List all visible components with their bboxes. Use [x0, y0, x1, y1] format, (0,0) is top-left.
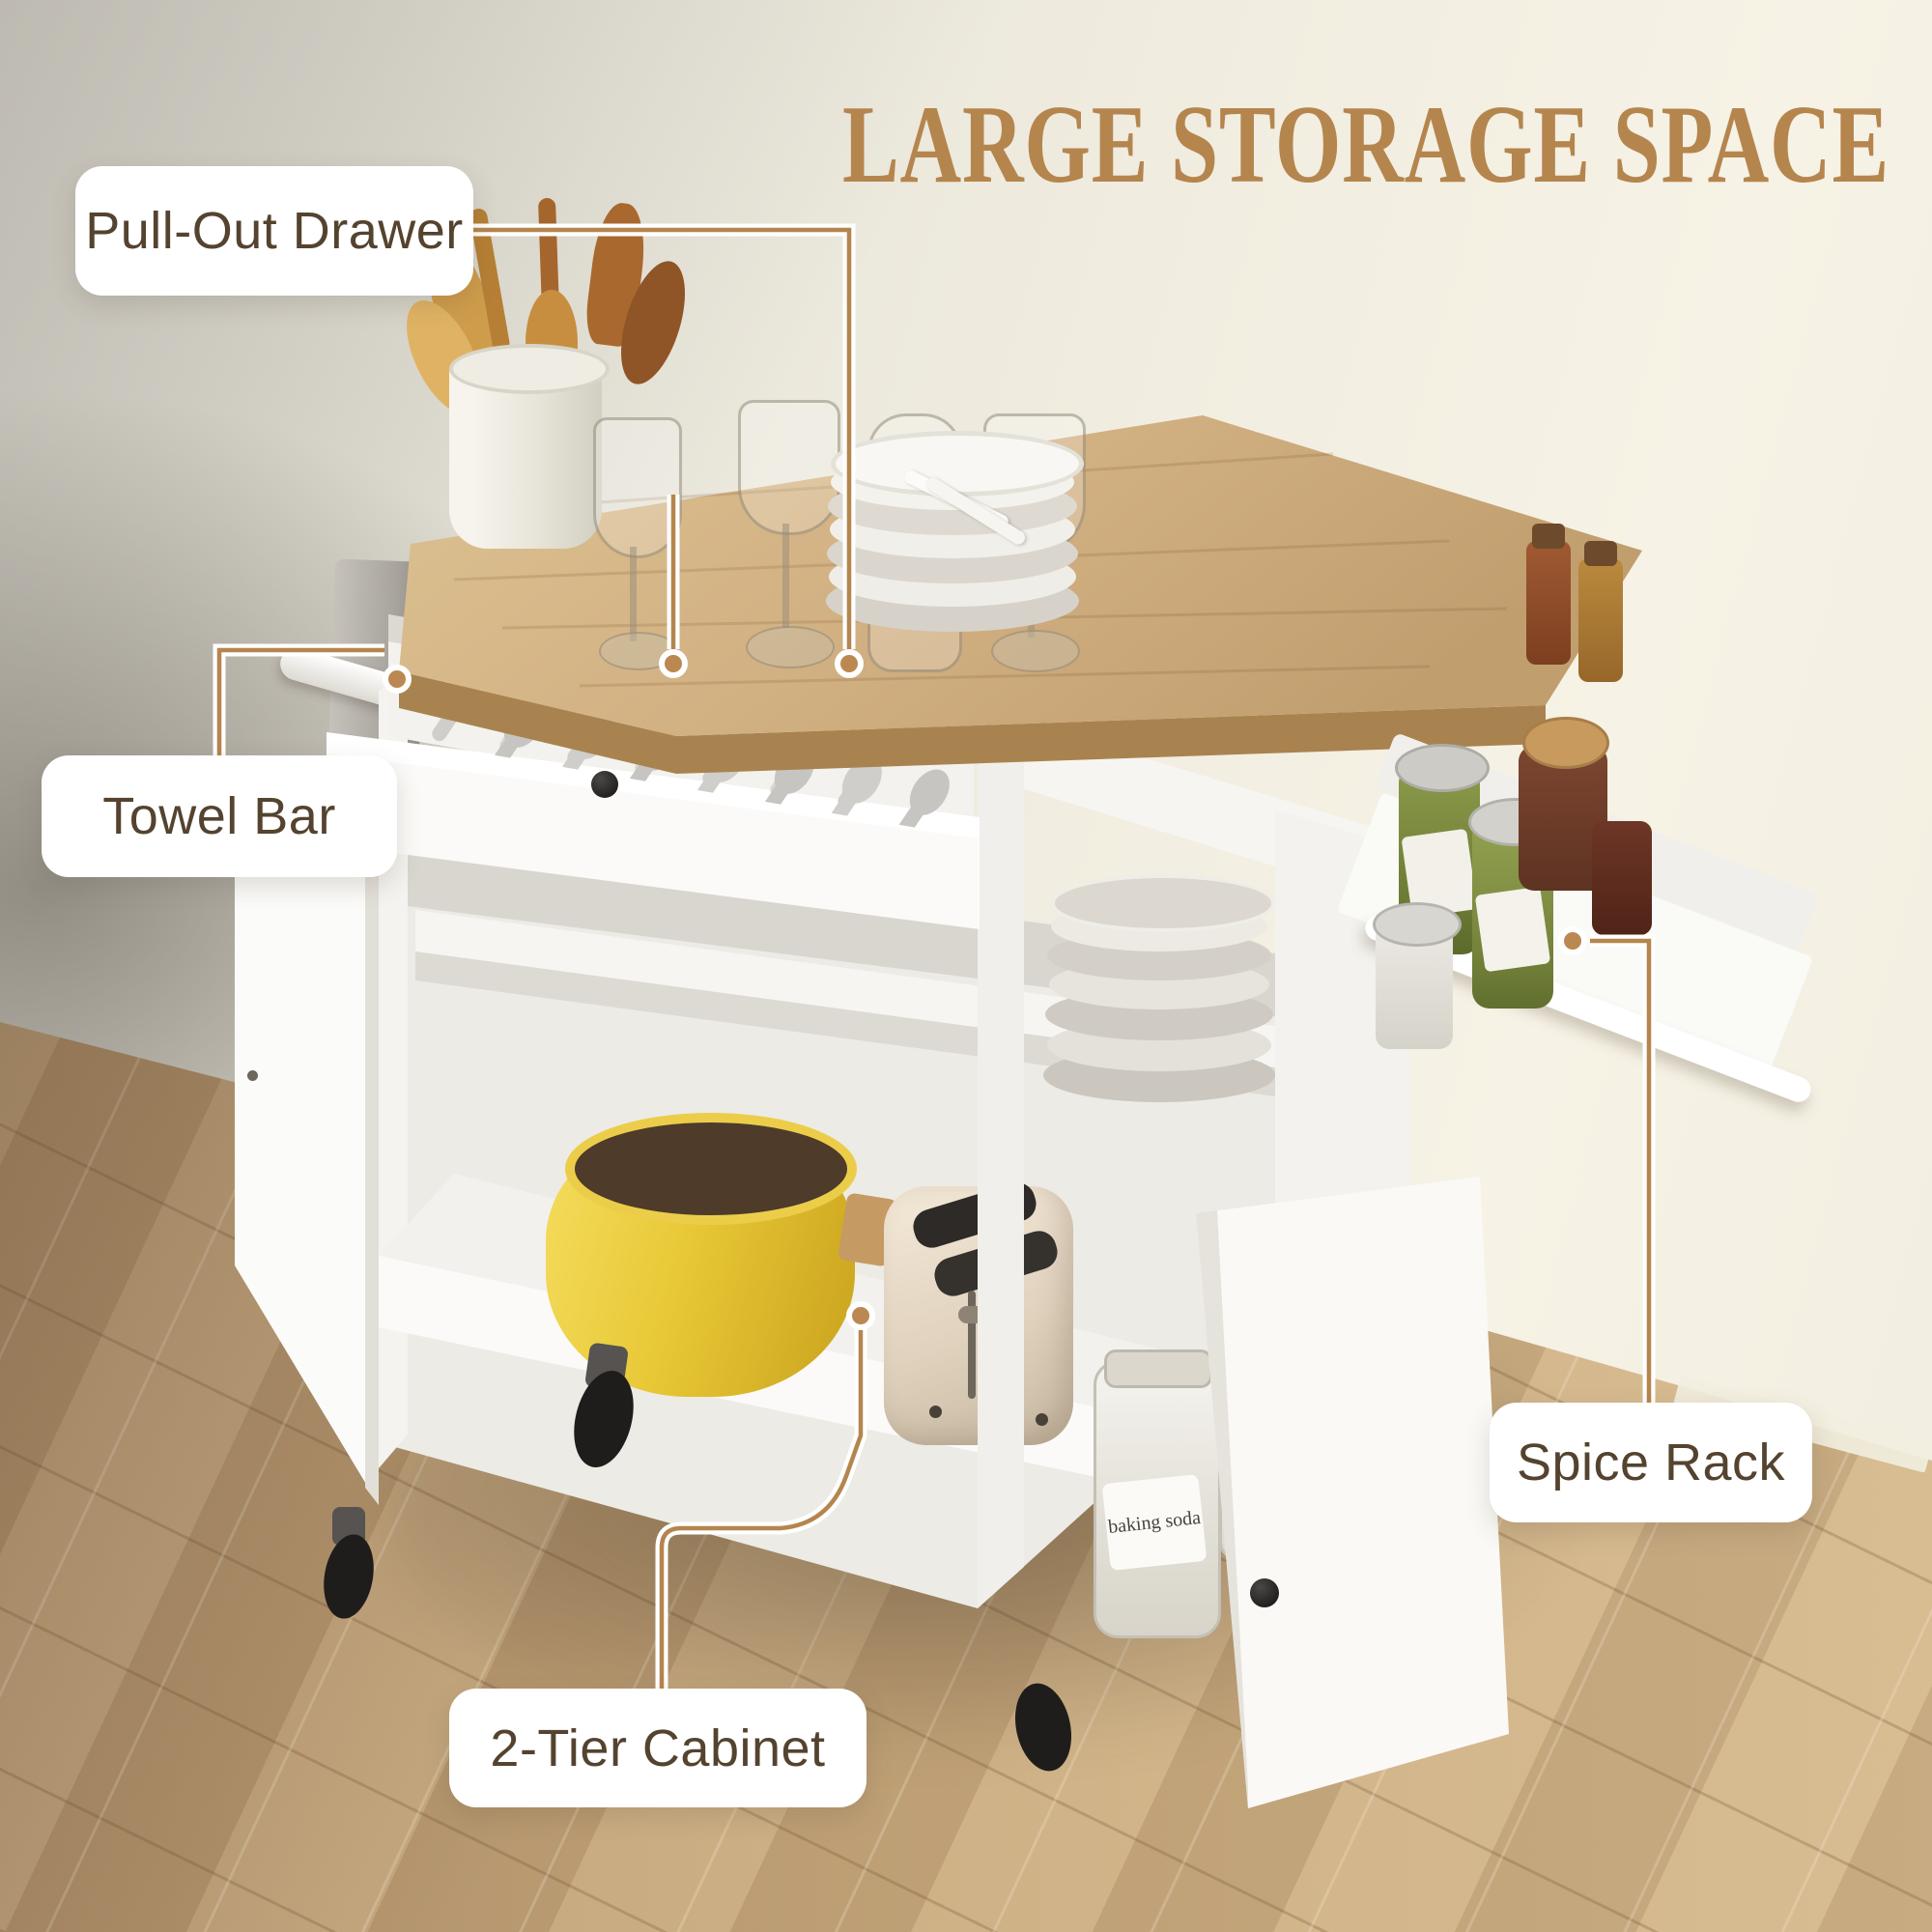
callout-label: Spice Rack: [1517, 1433, 1785, 1492]
callout-two-tier-cabinet: 2-Tier Cabinet: [449, 1689, 867, 1807]
callout-towel-bar: Towel Bar: [42, 755, 397, 877]
callout-label: 2-Tier Cabinet: [490, 1719, 825, 1778]
callout-spice-rack: Spice Rack: [1490, 1403, 1812, 1522]
callout-label: Towel Bar: [102, 786, 336, 846]
product-infographic: STOP baking soda: [0, 0, 1932, 1932]
headline: LARGE STORAGE SPACE: [842, 81, 1723, 210]
callout-label: Pull-Out Drawer: [85, 201, 464, 261]
connector-dot: [385, 652, 1584, 1327]
callout-pull-out-drawer: Pull-Out Drawer: [75, 166, 473, 296]
